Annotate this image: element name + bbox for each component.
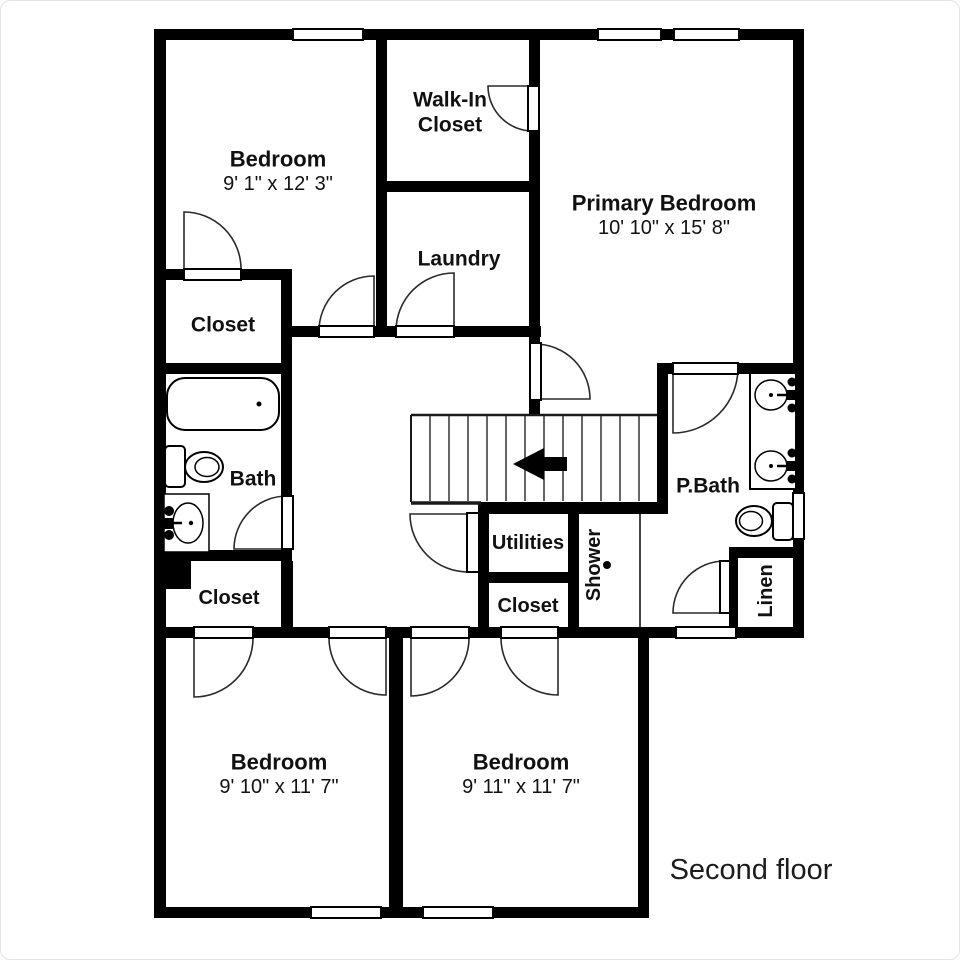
door-leaf — [673, 363, 738, 374]
window — [676, 627, 736, 638]
wall — [638, 627, 649, 918]
stairs-direction-arrow-icon — [513, 448, 567, 480]
room-label-laundry: Laundry — [418, 248, 501, 271]
floor-plan-canvas: Bedroom 9' 1" x 12' 3" Walk-In Closet La… — [0, 0, 960, 960]
door-arc — [488, 86, 533, 131]
door-arc — [411, 638, 469, 696]
wall — [154, 627, 194, 638]
wall — [529, 399, 540, 416]
door-leaf — [528, 86, 539, 131]
wall — [657, 363, 673, 374]
door-arc — [329, 638, 386, 695]
room-label-closet-top-left: Closet — [191, 314, 255, 337]
toilet-icon — [165, 446, 223, 487]
wall — [281, 326, 319, 337]
room-label-bedroom-bottom-left: Bedroom — [231, 750, 328, 775]
door-arc — [194, 638, 253, 697]
wall — [374, 326, 396, 337]
room-dims-bedroom-top-left: 9' 1" x 12' 3" — [223, 173, 333, 195]
door-arc — [673, 561, 725, 613]
wall — [281, 561, 293, 638]
door-arc — [410, 514, 468, 572]
door-arc — [396, 273, 454, 331]
window — [674, 29, 739, 40]
door-leaf — [396, 326, 454, 337]
staircase — [411, 415, 657, 503]
door-arc — [535, 344, 590, 399]
room-label-walk-in-closet-line2: Closet — [418, 114, 482, 137]
door-arc — [184, 212, 241, 269]
bathtub-icon — [167, 378, 279, 430]
room-label-bath: Bath — [230, 468, 277, 491]
window — [793, 493, 804, 539]
double-vanity-icon — [750, 373, 797, 489]
room-label-primary-bath: P.Bath — [676, 475, 740, 498]
door-leaf — [184, 269, 241, 280]
room-label-bedroom-bottom-right: Bedroom — [473, 750, 570, 775]
room-label-bedroom-top-left: Bedroom — [230, 147, 327, 172]
room-dims-bedroom-bottom-left: 9' 10" x 11' 7" — [219, 776, 338, 798]
wall — [376, 29, 387, 336]
door-leaf — [411, 627, 469, 638]
room-dims-primary-bedroom: 10' 10" x 15' 8" — [598, 217, 730, 239]
door-leaf — [329, 627, 386, 638]
floor-plan-drawing: Bedroom 9' 1" x 12' 3" Walk-In Closet La… — [1, 1, 960, 960]
wall — [729, 547, 804, 558]
room-label-walk-in-closet-line1: Walk-In — [413, 89, 487, 112]
door-arc — [673, 368, 738, 433]
wall — [281, 269, 292, 496]
wall — [657, 363, 668, 504]
room-label-closet-middle: Closet — [497, 595, 558, 617]
wall — [253, 627, 329, 638]
floor-title: Second floor — [670, 854, 833, 886]
window — [423, 907, 493, 918]
door-leaf — [501, 627, 558, 638]
toilet-icon — [736, 503, 793, 540]
door-leaf — [194, 627, 253, 638]
room-label-shower: Shower — [583, 529, 605, 601]
room-labels: Bedroom 9' 1" x 12' 3" Walk-In Closet La… — [191, 89, 777, 799]
door-arc — [234, 496, 287, 549]
wall — [793, 29, 804, 638]
wall — [478, 572, 579, 583]
door-leaf — [319, 326, 374, 337]
wall — [387, 181, 529, 192]
room-dims-bedroom-bottom-right: 9' 11" x 11' 7" — [462, 776, 580, 798]
door-leaf — [467, 513, 479, 572]
room-label-primary-bedroom: Primary Bedroom — [572, 191, 757, 216]
window — [293, 29, 363, 40]
wall — [568, 502, 579, 638]
door-leaf — [282, 496, 293, 549]
door-arc — [319, 276, 374, 331]
wall — [154, 363, 292, 374]
room-label-closet-mid-left: Closet — [198, 587, 259, 609]
structural-block — [154, 561, 191, 589]
door-arc — [501, 638, 558, 695]
wall — [454, 326, 541, 337]
wall — [529, 29, 540, 344]
door-leaf — [720, 561, 730, 613]
window — [311, 907, 381, 918]
room-label-utilities: Utilities — [492, 532, 564, 554]
window — [598, 29, 661, 40]
room-label-linen: Linen — [755, 564, 777, 617]
door-leaf — [530, 343, 541, 400]
wall — [154, 269, 184, 280]
wall — [389, 627, 403, 918]
sink-icon — [164, 494, 209, 552]
